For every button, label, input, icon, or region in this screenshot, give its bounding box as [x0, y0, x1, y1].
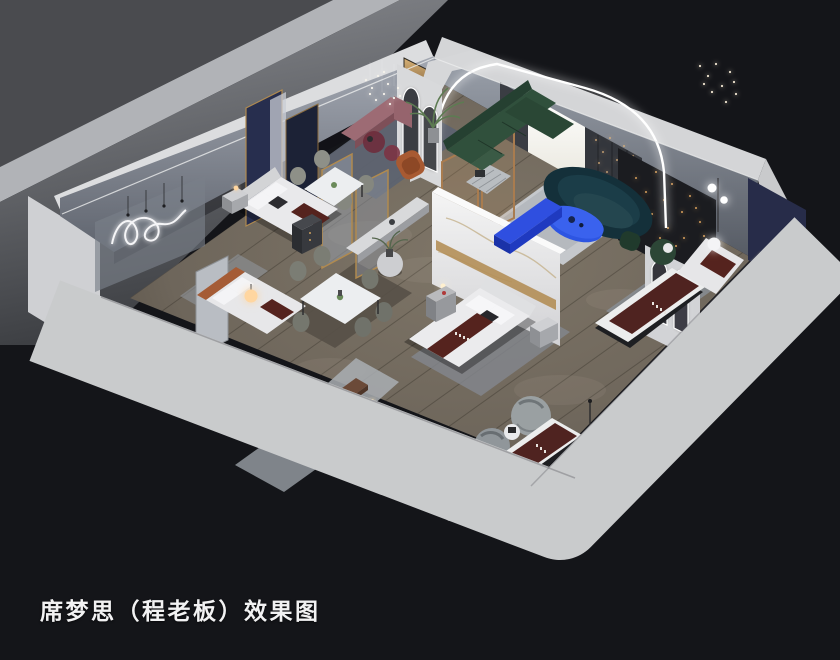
table-decor — [367, 136, 373, 142]
chest-decor-red — [442, 291, 446, 295]
ottoman-tray — [475, 170, 485, 177]
armchair-pillow — [663, 243, 673, 253]
green-armchair — [650, 239, 676, 265]
render-stage: 席梦思（程老板）效果图 — [0, 0, 840, 660]
burgundy-table-1 — [363, 131, 385, 153]
bedside-lamp-1 — [234, 186, 239, 191]
console-decor — [389, 219, 395, 225]
sphere-lamp-bed2 — [245, 290, 258, 303]
showroom-isometric-render — [0, 0, 840, 660]
caption: 席梦思（程老板）效果图 — [40, 592, 321, 626]
